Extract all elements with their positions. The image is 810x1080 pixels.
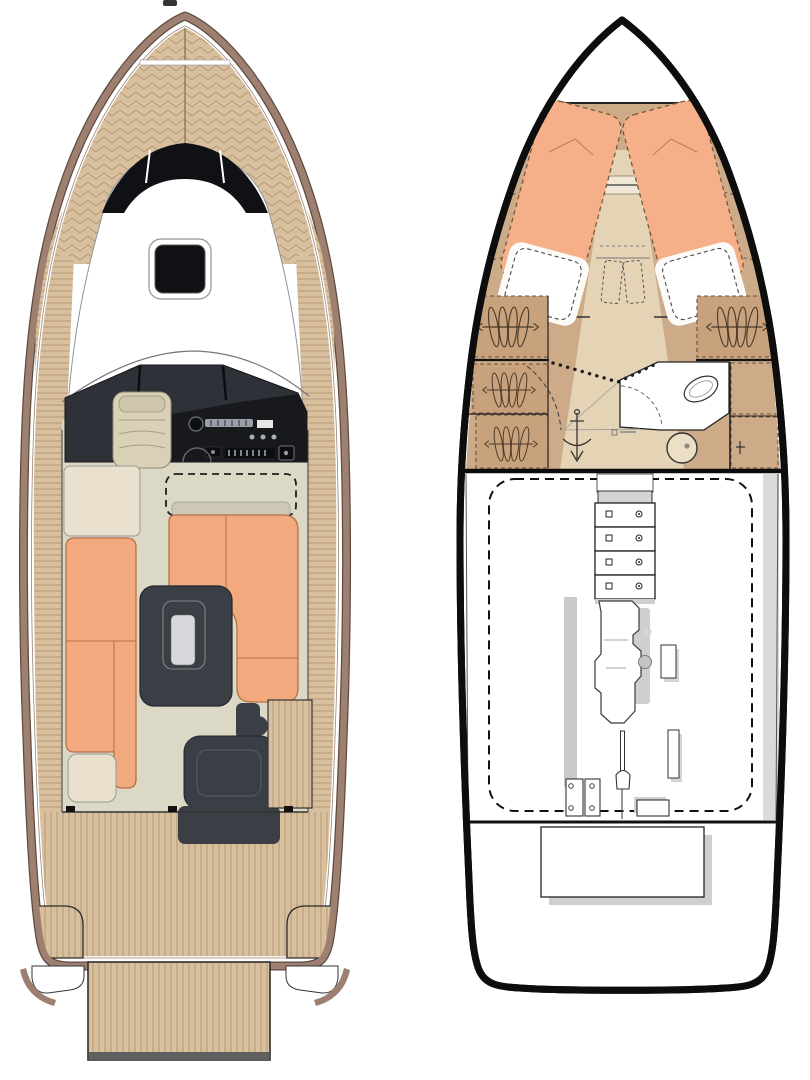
deck-plans-page [0, 0, 810, 1080]
transom-locker [541, 827, 712, 905]
wet-bar [268, 700, 312, 808]
deck-plans-figure [0, 0, 810, 1080]
bench-end-table [68, 754, 116, 802]
bow-fitting [163, 0, 177, 6]
deck-cleat [66, 806, 75, 812]
switch-panel [225, 448, 275, 458]
companion-seat [113, 392, 171, 468]
lower-deck-plan [460, 20, 786, 990]
bow-hatch [149, 239, 211, 299]
shaft-plates [566, 779, 600, 816]
drawer-unit [595, 474, 655, 604]
anchor-hatch-seam [140, 60, 230, 65]
engine-stringer [564, 597, 577, 787]
stern-quarter-starboard [286, 966, 338, 993]
fitting [668, 730, 679, 778]
skid-block [637, 800, 669, 816]
stern-quarter-port [32, 966, 84, 993]
port-bench [66, 538, 136, 788]
deck-cleat [168, 806, 177, 812]
drawer [595, 551, 655, 575]
swim-platform [88, 962, 270, 1060]
helm-dial [189, 417, 203, 431]
display-block [257, 420, 273, 428]
cockpit-table [140, 586, 232, 706]
drawer [595, 575, 655, 599]
drawer [595, 503, 655, 527]
deck-cleat [284, 806, 293, 812]
main-deck-plan [20, 0, 350, 1060]
drawer [595, 527, 655, 551]
toilet [667, 433, 697, 463]
fitting [661, 645, 676, 678]
side-cabinet [64, 466, 140, 536]
